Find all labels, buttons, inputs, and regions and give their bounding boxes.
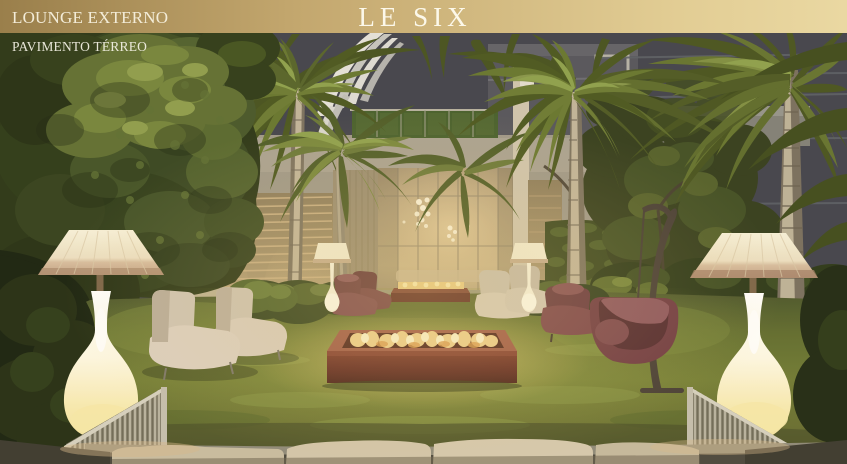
svg-text:LOUNGE EXTERNO: LOUNGE EXTERNO [12,8,168,27]
svg-text:LE SIX: LE SIX [358,2,471,32]
svg-text:PAVIMENTO TÉRREO: PAVIMENTO TÉRREO [12,39,147,54]
